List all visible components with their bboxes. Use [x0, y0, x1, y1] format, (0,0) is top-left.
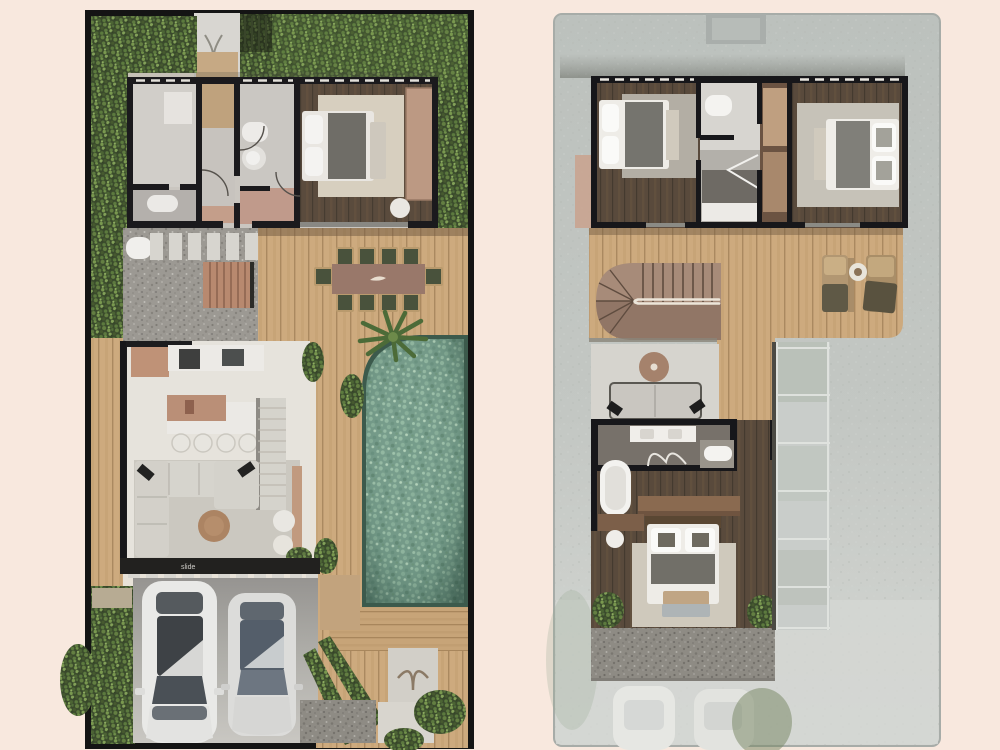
svg-text:slide: slide [181, 564, 196, 571]
